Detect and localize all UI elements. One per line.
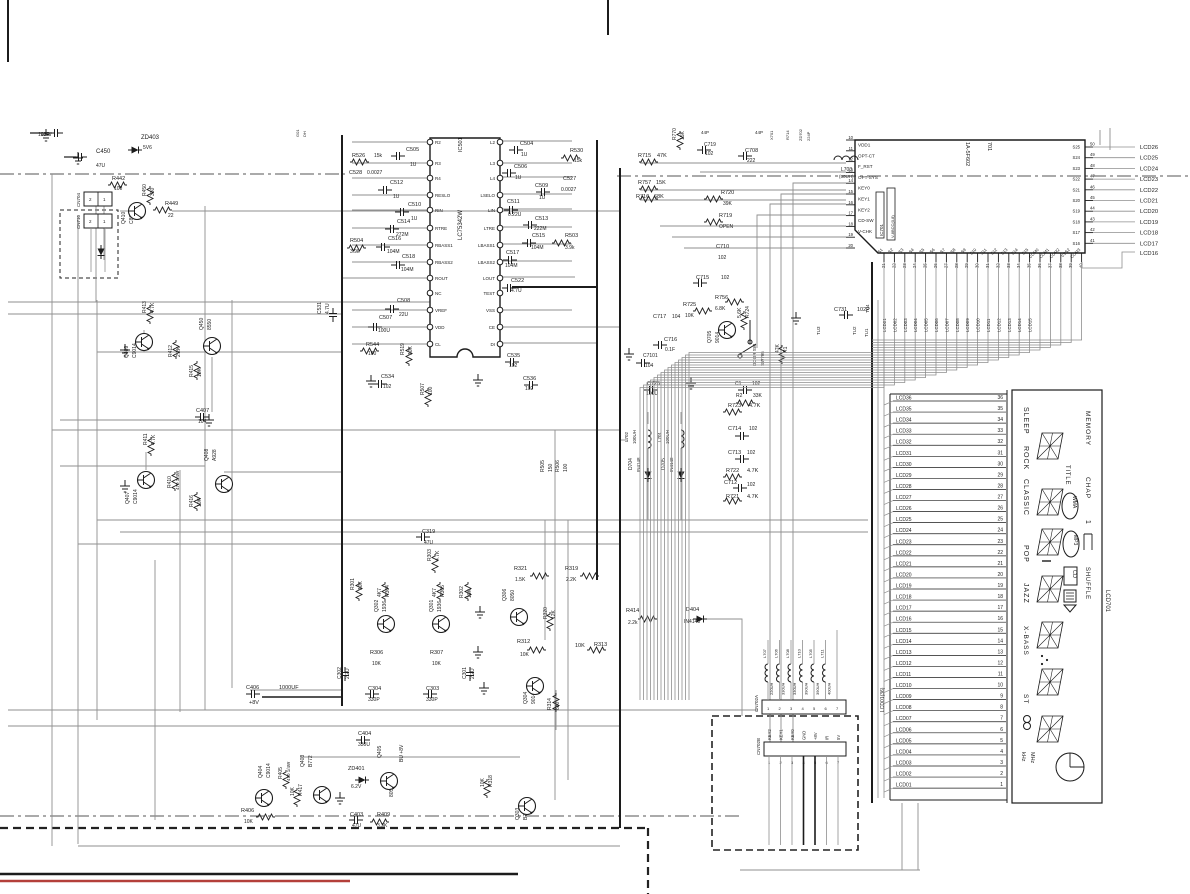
pin-name: S14 — [1010, 247, 1019, 256]
component-label: C406 — [246, 685, 259, 691]
lcd-pin-number: 32 — [997, 439, 1003, 445]
ground-symbol — [335, 792, 345, 804]
lcd-pin-number: 17 — [997, 605, 1003, 611]
component-label: 44P — [701, 130, 709, 135]
component-label: R306 — [370, 650, 383, 656]
component-label: 10K — [575, 643, 585, 649]
lcd-pin-label: LCD11 — [896, 672, 911, 678]
ladder-hook — [884, 401, 893, 405]
component-label: R442 — [112, 176, 125, 182]
pin — [427, 341, 433, 347]
component-label: R723 — [728, 403, 741, 409]
dot-segment — [1041, 663, 1043, 665]
lcd-pin-number: 35 — [997, 406, 1003, 412]
lcd-pin-label: LCD21 — [896, 561, 912, 567]
component-label: 102 — [718, 255, 727, 261]
ladder-hook — [884, 512, 893, 516]
pin-number: 1 — [768, 760, 771, 765]
net-label: LCD23 — [1140, 177, 1158, 183]
component-label: 104 — [645, 363, 654, 369]
pin-number: 23 — [902, 263, 907, 268]
component-label: R505 — [540, 460, 546, 472]
ground-symbol — [791, 312, 801, 324]
lcd-word: CLASSIC — [1022, 479, 1029, 516]
component-label: R756 — [715, 295, 728, 301]
ground-symbol — [624, 348, 634, 360]
ic501-pin-name: L3 — [490, 161, 496, 166]
lcd-word: MEMORY — [1084, 411, 1091, 446]
net-label: LCD24 — [1140, 166, 1159, 172]
pin-name: S20 — [1073, 198, 1081, 203]
lcd-bus-label: LCD11 — [986, 318, 991, 332]
pin-name: F_RST — [858, 164, 873, 169]
ladder-hook — [884, 445, 893, 449]
ladder-hook — [884, 611, 893, 615]
schematic-page: 103PC45047UZD4035V6R442100R450330Q410C80… — [0, 0, 1190, 894]
pin-number: 6 — [826, 760, 829, 765]
pin-number: 21 — [881, 263, 886, 268]
component-label: 6.2V — [351, 784, 362, 790]
pin — [497, 225, 503, 231]
lcd-pin-number: 12 — [997, 660, 1003, 666]
component-label: Q410 — [121, 212, 127, 224]
pin-number: 43 — [1090, 216, 1095, 221]
lcd-pin-label: LCD26 — [896, 506, 912, 512]
net-label: LCD16 — [1140, 251, 1158, 257]
resistor-symbol — [725, 299, 744, 305]
lcd-word: SLEEP — [1022, 407, 1029, 435]
component-label: R504 — [350, 238, 363, 244]
component-label: R416 — [189, 495, 195, 507]
inductor-value: 390UH — [804, 682, 809, 695]
component-label: C506 — [514, 164, 527, 170]
pin-name: KEY1 — [858, 197, 870, 202]
pin-name: +8V — [813, 732, 818, 740]
inductor-symbol — [788, 664, 791, 682]
component-label: TU1 — [864, 328, 869, 337]
net-label: LCD18 — [1140, 231, 1158, 237]
lcd-pin-label: LCD15 — [896, 628, 912, 634]
lcd-pin-label: LCD06 — [896, 727, 912, 733]
transistor-symbol — [377, 616, 395, 633]
component-label: C715 — [696, 275, 709, 281]
pin-name: VDD1 — [858, 143, 871, 148]
ic501-pin-name: CE — [489, 325, 495, 330]
component-label: C514 — [397, 219, 410, 225]
component-label: R719 — [719, 213, 732, 219]
transistor-symbol — [137, 472, 155, 489]
component-label: 102 — [749, 426, 758, 432]
inductor-symbol — [811, 664, 814, 682]
ic501-part: LC75342W — [458, 210, 464, 240]
transistor-symbol — [313, 787, 331, 804]
lcd-pin-label: LCD09 — [896, 694, 912, 700]
schematic-canvas: 103PC45047UZD4035V6R442100R450330Q410C80… — [0, 0, 1190, 894]
pin-number: 14 — [848, 178, 853, 183]
component-label: 102 — [705, 151, 714, 157]
pin-number: 42 — [1090, 227, 1095, 232]
ic501-pin-name: RTRE — [435, 226, 447, 231]
component-label: Q450 — [199, 318, 205, 330]
component-label: 39K — [723, 201, 733, 207]
component-label: 10K — [685, 313, 695, 319]
resistor-symbol — [693, 308, 712, 314]
lcd-pin-number: 36 — [997, 395, 1003, 401]
lcd-pin-label: LCD02 — [896, 772, 912, 778]
component-label: C515 — [532, 233, 545, 239]
resistor-symbol — [723, 498, 742, 504]
component-label: C513 — [535, 216, 548, 222]
ladder-hook — [884, 644, 893, 648]
lcd-pin-label: LCD01 — [896, 783, 912, 789]
component-label: R544 — [366, 342, 379, 348]
capacitor-symbol — [735, 455, 749, 463]
component-label: 222 — [747, 158, 756, 164]
ladder-hook — [884, 777, 893, 781]
component-label: 5V6 — [143, 145, 152, 151]
component-label: R320 — [543, 607, 549, 619]
ic501-pin-name: DI — [491, 342, 496, 347]
pin-name: S21 — [1073, 187, 1081, 192]
component-label: R720 — [721, 190, 734, 196]
component-label: 1000UF — [279, 685, 299, 691]
component-label: R506 — [555, 460, 561, 472]
inductor-value: 330UH — [792, 682, 797, 695]
pin-number: 45 — [1090, 195, 1095, 200]
lcd-pin-label: LCD25 — [896, 517, 912, 523]
lcd-word: POP — [1022, 545, 1029, 563]
component-label: C517 — [506, 250, 519, 256]
resistor-symbol — [527, 647, 546, 653]
lcd701-designator: LCD701 — [1104, 590, 1110, 613]
pin-name: KEY0 — [858, 186, 870, 191]
ladder-hook — [884, 489, 893, 493]
ladder-hook — [884, 755, 893, 759]
pin-name: S10 — [969, 247, 978, 256]
freq-unit: MHz — [1029, 752, 1035, 764]
pin — [427, 207, 433, 213]
component-label: 47U — [352, 823, 362, 829]
pin-number: 20 — [848, 243, 853, 248]
pin-number: 22 — [891, 263, 896, 268]
pin — [427, 290, 433, 296]
component-label: 4.7U — [511, 288, 522, 294]
lcd-bus-label: LCD02 — [892, 318, 897, 332]
component-label: A928 — [212, 449, 218, 461]
pin-number: 25 — [923, 263, 928, 268]
lcd-pin-label: LCD08 — [896, 705, 912, 711]
pin — [497, 139, 503, 145]
component-label: 100UH — [632, 430, 637, 444]
ic501: IC501LC75342WR2R3R4RESLORINRTRERBASS1RBA… — [427, 137, 503, 357]
ladder-hook — [884, 788, 893, 792]
ic501-pin-name: LIN — [488, 208, 495, 213]
component-label: R314 — [547, 698, 553, 710]
ic501-pin-name: L2 — [490, 140, 496, 145]
component-label: R406 — [241, 808, 254, 814]
net-wire — [1082, 252, 1135, 268]
connector-name: CN702B — [756, 738, 761, 755]
component-labels: 103PC45047UZD4035V6R442100R450330Q410C80… — [38, 128, 870, 829]
ladder-hook — [884, 423, 893, 427]
diode-symbol — [132, 147, 139, 154]
lcd-pin-number: 23 — [997, 539, 1003, 545]
lcd-pin-number: 21 — [997, 561, 1003, 567]
pin — [497, 259, 503, 265]
component-label: 2.2k — [628, 620, 638, 626]
component-label: C407 — [196, 408, 209, 414]
component-label: BU +8V — [399, 744, 405, 762]
lcd-pin-number: 27 — [997, 495, 1003, 501]
component-label: C713 — [728, 450, 741, 456]
component-label: 4.7K — [749, 403, 761, 409]
pin-name: OPT-SYS — [858, 175, 878, 180]
lcd-pin-number: 10 — [997, 683, 1003, 689]
component-label: 10K — [372, 661, 382, 667]
component-label: Q705 — [707, 331, 713, 343]
ic701-ref: 701 — [986, 142, 992, 151]
ground-symbol — [473, 374, 483, 386]
component-label: Q403 — [300, 755, 306, 767]
component-label: C507 — [379, 315, 392, 321]
pin-number: 11 — [849, 146, 854, 151]
ic501-pin-name: TEST — [483, 291, 495, 296]
lcd-pin-number: 29 — [997, 472, 1003, 478]
component-label: D704 — [628, 458, 634, 470]
ic501-designator: IC501 — [458, 137, 464, 152]
pin — [497, 192, 503, 198]
pin — [497, 324, 503, 330]
lcd-bus-label: LCD13 — [1007, 318, 1012, 332]
ladder-hook — [884, 766, 893, 770]
ladder-hook — [884, 501, 893, 505]
component-label: C731 — [834, 307, 847, 313]
transistor-symbol — [203, 338, 221, 355]
inductor-ref: L711 — [820, 649, 825, 658]
lcd-pin-label: LCD32 — [896, 440, 912, 446]
component-label: OPEN — [719, 224, 734, 230]
component-label: 1U — [410, 162, 417, 168]
component-label: 5.6K — [737, 307, 743, 318]
component-label: C516 — [388, 236, 401, 242]
lcd-pin-number: 26 — [997, 506, 1003, 512]
ladder-hook — [884, 600, 893, 604]
component-label: C9014 — [133, 489, 139, 504]
ladder-hook — [884, 478, 893, 482]
ic701-tag: IC701 — [879, 223, 884, 236]
component-label: C450 — [96, 149, 111, 155]
lcd-pin-number: 4 — [1000, 749, 1003, 755]
ic501-pin-name: CL — [435, 342, 441, 347]
transistor-symbol — [380, 773, 398, 790]
ladder-hook — [884, 733, 893, 737]
ic701-part: 1A-5F602 — [964, 142, 970, 166]
component-label: 0.22U — [508, 212, 522, 218]
component-label: 1U — [393, 194, 400, 200]
lcd-pin-number: 25 — [997, 517, 1003, 523]
lcd-seg-wire — [640, 262, 884, 700]
component-label: 4K7 — [432, 588, 438, 597]
component-label: Q302 — [374, 600, 380, 612]
dot-segment — [1046, 659, 1048, 661]
component-label: 1936 — [437, 601, 443, 612]
pin-number: 16 — [848, 200, 853, 205]
pin-number: 29 — [964, 263, 969, 268]
lcd-word: JAZZ — [1022, 583, 1029, 604]
component-label: 4.7U — [325, 303, 331, 314]
lcd-seg-wire — [672, 262, 978, 700]
component-label: C510 — [408, 202, 421, 208]
lcd-pin-label: LCD13 — [896, 650, 912, 656]
component-label: L702 — [624, 431, 629, 442]
lcd-pin-label: LCD27 — [896, 495, 912, 501]
net-label: LCD21 — [1140, 199, 1158, 205]
component-label: 47K — [657, 153, 667, 159]
component-label: 104M — [531, 245, 544, 251]
pin-number: 17 — [848, 211, 853, 216]
resistor-symbol — [587, 647, 606, 653]
lcd-pin-label: LCD35 — [896, 407, 912, 413]
pin-number: 48 — [1090, 163, 1095, 168]
component-label: 15k — [374, 153, 383, 159]
transistor-symbol — [432, 616, 450, 633]
component-label: C403 — [350, 812, 363, 818]
component-label: 2.2U — [345, 668, 351, 679]
component-label: 2.2K — [566, 577, 577, 583]
component-label: 224P — [806, 131, 811, 141]
lcd-pin-label: LCD33 — [896, 429, 912, 435]
component-label: 33K — [753, 393, 763, 399]
component-label: Q301 — [429, 600, 435, 612]
net-label: LCD26 — [1140, 145, 1158, 151]
lcd-bus-label: LCD08 — [955, 318, 960, 332]
component-label: C716 — [664, 337, 677, 343]
pin — [427, 139, 433, 145]
lcd-pin-number: 9 — [1000, 694, 1003, 700]
lcd-pin-label: LCD03 — [896, 760, 912, 766]
component-label: 1U — [411, 216, 418, 222]
pin-number: 2 — [780, 760, 783, 765]
connectors: 21CN70421CN710CN702A1L707220UH2L706330UH… — [76, 192, 846, 845]
component-label: ZD401 — [348, 766, 365, 772]
net-label: LCD17 — [1140, 241, 1158, 247]
component-label: R714 — [785, 130, 790, 140]
component-label: R757 — [638, 180, 651, 186]
badge-label: WMA — [1071, 496, 1077, 509]
lcd-word: TITLE — [1064, 465, 1070, 485]
pin — [427, 242, 433, 248]
pin-number: 49 — [1090, 152, 1095, 157]
pin-number: 19 — [848, 232, 853, 237]
pin — [497, 307, 503, 313]
component-label: 68K — [654, 194, 664, 200]
ladder-hook — [884, 567, 893, 571]
pin-number: 37 — [1047, 263, 1052, 268]
component-label: C7101 — [643, 353, 658, 359]
component-label: 1.5K — [515, 577, 526, 583]
component-label: TU2 — [852, 326, 857, 335]
component-symbols — [41, 129, 858, 825]
component-label: C505 — [406, 147, 419, 153]
resistor-symbol — [256, 814, 275, 820]
ic501-pin-name: RESLO — [435, 193, 451, 198]
lcd-seg-wire — [872, 262, 1040, 350]
component-label: 102 — [383, 384, 392, 390]
inductor-ref: L708 — [785, 648, 790, 658]
pin-number: 10 — [848, 135, 853, 140]
net-label: LCD22 — [1140, 188, 1158, 194]
ground-symbol — [366, 375, 376, 387]
ic501-pin-name: R3 — [435, 161, 441, 166]
component-label: 22 — [168, 213, 174, 219]
lcd-pin-label: LCD23 — [896, 539, 912, 545]
badge-label: CD — [1071, 570, 1077, 578]
ladder-hook — [884, 456, 893, 460]
pin-number: 33 — [1006, 263, 1011, 268]
lcd-pin-label: LCD31 — [896, 451, 912, 457]
lcd-bus-label: LCD15 — [1028, 318, 1033, 332]
component-label: G01 — [295, 129, 300, 137]
ic501-pin-name: RBASS1 — [435, 243, 453, 248]
ic501-pin-name: LBASS1 — [478, 243, 496, 248]
component-label: 102 — [747, 482, 756, 488]
connector-name: CN702A — [754, 695, 759, 712]
component-label: 47U — [96, 163, 106, 169]
component-label: 47U — [424, 540, 434, 546]
component-label: C303 — [426, 686, 439, 692]
lcd-bus-label: LCD06 — [934, 318, 939, 332]
net-label: LCD19 — [1140, 220, 1158, 226]
ic501-pin-name: VDD — [435, 325, 445, 330]
component-label: Q306 — [502, 589, 508, 601]
ic501-pin-name: LOUT — [483, 276, 495, 281]
component-label: R307 — [430, 650, 443, 656]
ground-symbol — [479, 682, 489, 694]
pin — [497, 275, 503, 281]
lcd-pin-number: 14 — [997, 638, 1003, 644]
lcd-seg-wire — [651, 262, 916, 700]
ic501-pin-name: LBASS2 — [478, 260, 496, 265]
lcd-pin-number: 1 — [1000, 782, 1003, 788]
component-label: 1U — [521, 152, 528, 158]
lcd-pin-number: 33 — [997, 428, 1003, 434]
pin-name: S22 — [1073, 177, 1081, 182]
pin — [497, 160, 503, 166]
lcd-pin-label: LCD16 — [896, 617, 912, 623]
pin — [497, 207, 503, 213]
inductor-value: 330UH — [781, 682, 786, 695]
ladder-hook — [884, 556, 893, 560]
pin-name: S18 — [1073, 219, 1081, 224]
pin-number: 36 — [1037, 263, 1042, 268]
pin-number: 44 — [1090, 206, 1095, 211]
ic501-pin-name: VREF — [435, 308, 447, 313]
pin-number: 35 — [1027, 263, 1032, 268]
inductor-ref: L707 — [762, 648, 767, 658]
component-label: C319 — [422, 529, 435, 535]
lcd-bus-label: LCD09 — [965, 318, 970, 332]
component-label: C304 — [368, 686, 381, 692]
lcd-pin-label: LCD34 — [896, 418, 912, 424]
component-label: R409 — [377, 812, 390, 818]
lcd-bus-label: LCD04 — [913, 318, 918, 332]
lcd-pin-label: LCD12 — [896, 661, 912, 667]
pin — [427, 307, 433, 313]
component-label: 3.3K — [377, 823, 388, 829]
component-label: R449 — [165, 201, 178, 207]
pin-name: S25 — [1073, 145, 1081, 150]
component-label: 102 — [721, 275, 730, 281]
